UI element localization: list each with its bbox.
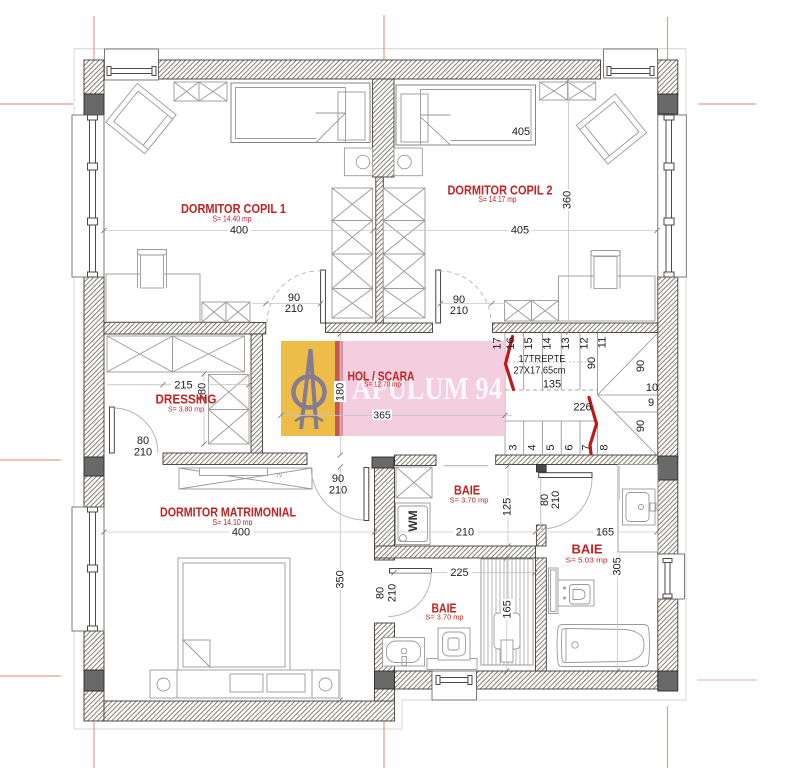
svg-text:17TREPTE: 17TREPTE bbox=[519, 353, 566, 365]
svg-text:90: 90 bbox=[586, 357, 598, 369]
svg-text:400: 400 bbox=[232, 527, 250, 539]
svg-text:365: 365 bbox=[373, 410, 391, 422]
svg-text:4: 4 bbox=[527, 444, 539, 450]
svg-text:210: 210 bbox=[387, 584, 399, 602]
svg-text:135: 135 bbox=[543, 379, 561, 391]
svg-text:165: 165 bbox=[596, 527, 614, 539]
svg-text:14: 14 bbox=[542, 337, 554, 349]
svg-text:350: 350 bbox=[335, 570, 347, 588]
svg-text:6: 6 bbox=[564, 444, 576, 450]
svg-text:226: 226 bbox=[573, 402, 591, 414]
svg-text:80: 80 bbox=[375, 587, 387, 599]
svg-text:S= 3.70 mp: S= 3.70 mp bbox=[450, 496, 489, 505]
svg-text:16: 16 bbox=[505, 337, 517, 349]
svg-text:S= 14.40 mp: S= 14.40 mp bbox=[213, 215, 252, 224]
svg-text:125: 125 bbox=[502, 498, 514, 516]
svg-text:210: 210 bbox=[456, 527, 474, 539]
svg-text:27X17.65cm: 27X17.65cm bbox=[514, 365, 566, 377]
svg-text:165: 165 bbox=[501, 600, 513, 618]
svg-text:7: 7 bbox=[581, 444, 593, 450]
svg-text:BAIE: BAIE bbox=[432, 601, 457, 616]
svg-text:400: 400 bbox=[230, 225, 248, 237]
svg-text:305: 305 bbox=[612, 557, 624, 575]
svg-text:TV: TV bbox=[276, 473, 283, 479]
svg-text:9: 9 bbox=[648, 397, 654, 409]
svg-text:S= 3.70 mp: S= 3.70 mp bbox=[426, 615, 464, 622]
svg-text:10: 10 bbox=[646, 382, 658, 394]
svg-text:S= 14.17 mp: S= 14.17 mp bbox=[479, 195, 517, 204]
svg-text:90: 90 bbox=[635, 420, 647, 432]
svg-text:210: 210 bbox=[285, 303, 303, 315]
svg-text:S= 5.03 mp: S= 5.03 mp bbox=[566, 556, 608, 565]
svg-text:225: 225 bbox=[450, 567, 468, 579]
svg-text:210: 210 bbox=[550, 491, 562, 509]
svg-text:DRESSING: DRESSING bbox=[156, 392, 217, 407]
svg-text:3: 3 bbox=[508, 444, 520, 450]
svg-text:13: 13 bbox=[560, 337, 572, 349]
svg-text:210: 210 bbox=[134, 447, 152, 459]
svg-text:11: 11 bbox=[597, 337, 609, 348]
svg-text:15: 15 bbox=[523, 337, 535, 349]
svg-text:80: 80 bbox=[137, 435, 149, 447]
svg-text:BAIE: BAIE bbox=[572, 542, 603, 557]
svg-text:405: 405 bbox=[511, 225, 529, 237]
svg-text:215: 215 bbox=[174, 380, 192, 392]
svg-text:405: 405 bbox=[512, 126, 530, 138]
svg-text:90: 90 bbox=[635, 360, 647, 372]
svg-text:S= 3.80 mp: S= 3.80 mp bbox=[168, 407, 204, 414]
svg-text:360: 360 bbox=[562, 191, 574, 209]
svg-text:210: 210 bbox=[329, 485, 347, 497]
svg-text:8: 8 bbox=[599, 444, 611, 450]
svg-text:WM: WM bbox=[406, 510, 420, 531]
svg-text:210: 210 bbox=[450, 305, 468, 317]
svg-text:17: 17 bbox=[492, 337, 504, 349]
svg-text:90: 90 bbox=[332, 473, 344, 485]
svg-text:12: 12 bbox=[579, 337, 591, 349]
svg-text:5: 5 bbox=[545, 444, 557, 450]
svg-text:S= 12.70 mp: S= 12.70 mp bbox=[364, 382, 401, 389]
svg-text:180: 180 bbox=[335, 383, 347, 401]
